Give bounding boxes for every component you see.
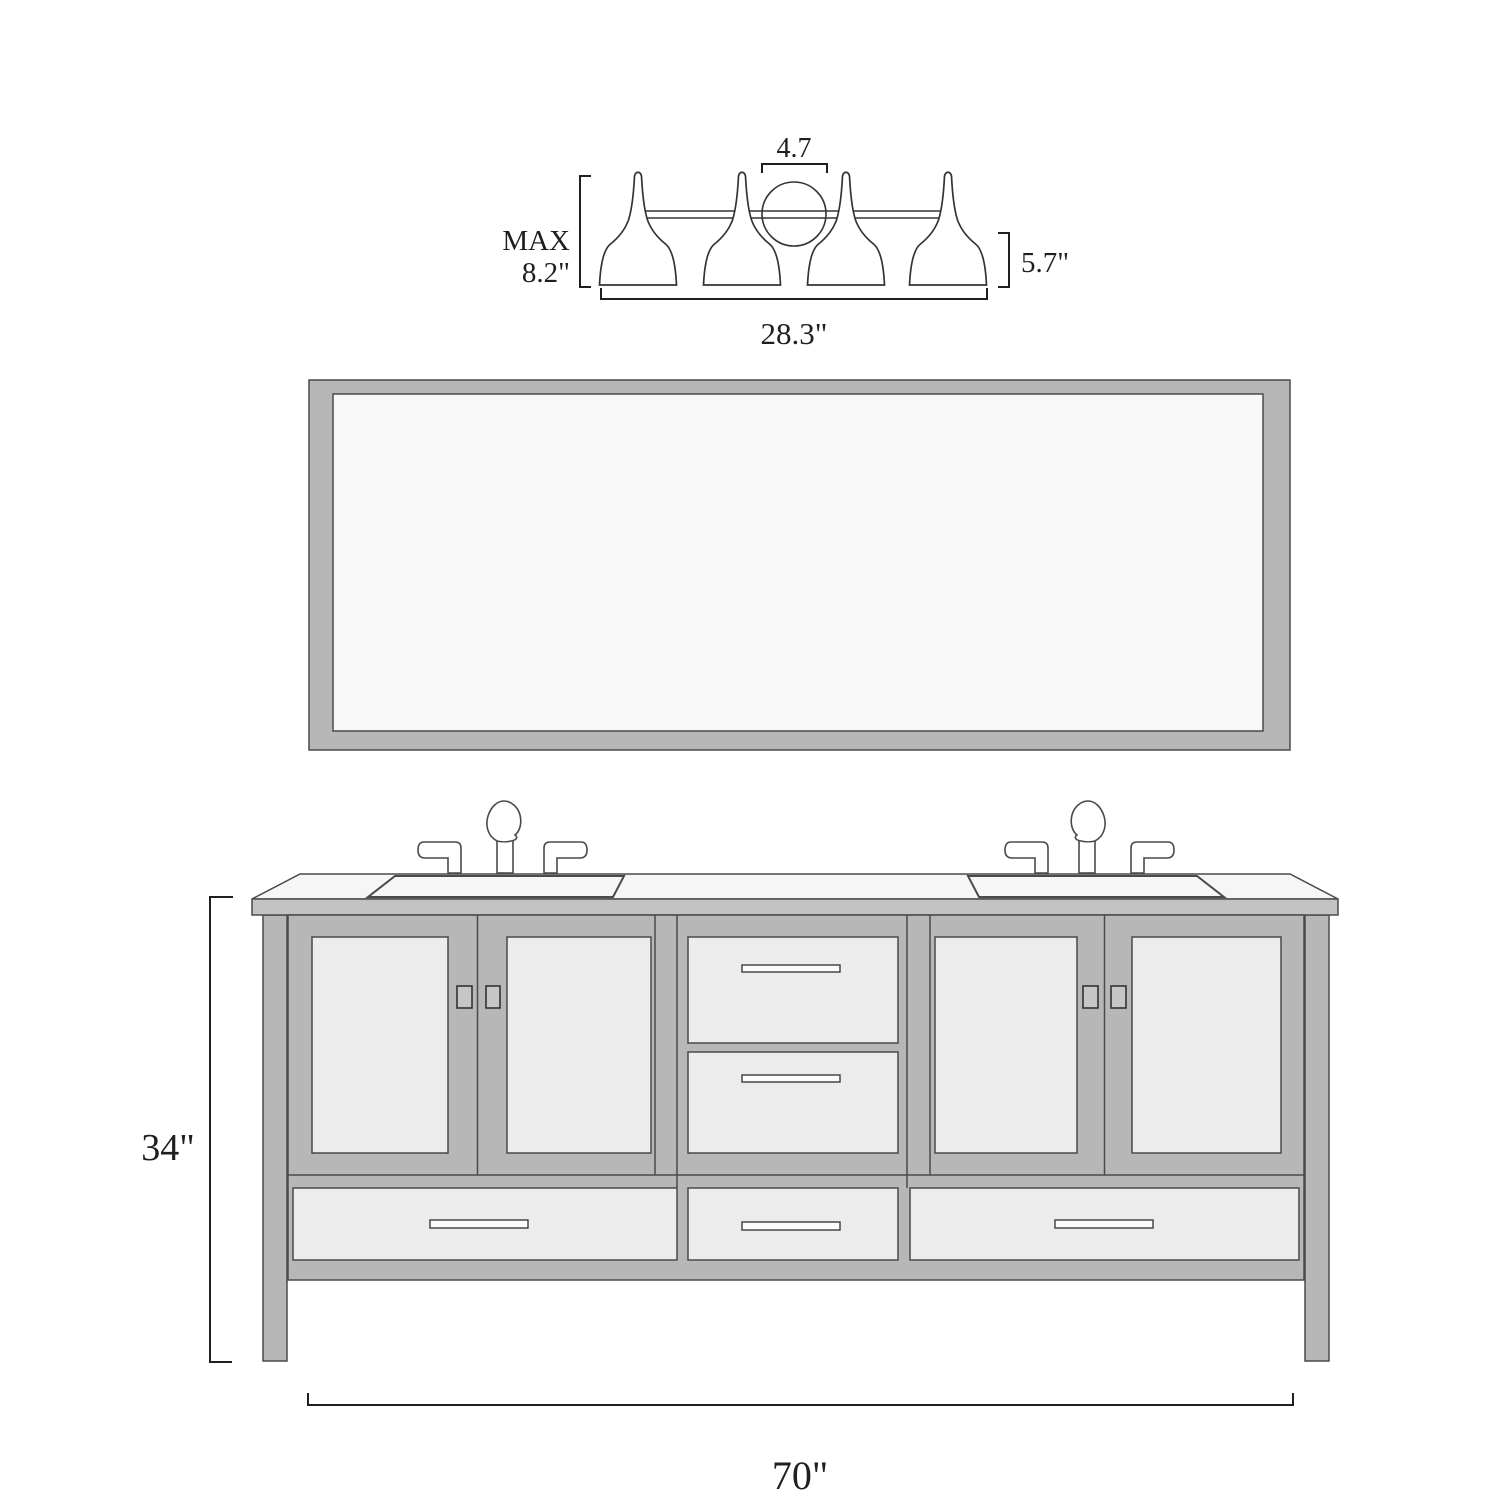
dim-bracket-shade-height	[998, 233, 1009, 287]
right-leg	[1305, 915, 1329, 1361]
vanity-light-fixture: 4.7 MAX 8.2" 5.7" 28.3"	[502, 133, 1069, 351]
dim-label-backplate-width: 4.7	[777, 133, 812, 164]
bottom-drawer-left-handle	[430, 1220, 528, 1228]
light-shade-3	[808, 172, 885, 285]
bottom-drawer-right-handle	[1055, 1220, 1153, 1228]
door-panel-1	[312, 937, 448, 1153]
vanity-cabinet	[252, 801, 1338, 1361]
dim-label-fixture-height-line2: 8.2"	[522, 257, 570, 289]
light-shade-2	[704, 172, 781, 285]
left-leg	[263, 915, 287, 1361]
light-shade-4	[910, 172, 987, 285]
dim-label-fixture-width: 28.3"	[761, 316, 828, 351]
center-drawer-top-handle	[742, 965, 840, 972]
mirror	[309, 380, 1290, 750]
vanity-dimension-diagram: 4.7 MAX 8.2" 5.7" 28.3"	[0, 0, 1500, 1500]
right-sink	[968, 876, 1224, 897]
bottom-drawer-center-handle	[742, 1222, 840, 1230]
center-drawer-bottom	[688, 1052, 898, 1153]
mirror-glass	[333, 394, 1263, 731]
door-panel-4	[1132, 937, 1281, 1153]
door-1-handle	[457, 986, 472, 1008]
door-panel-3	[935, 937, 1077, 1153]
dim-bracket-fixture-width	[601, 288, 987, 299]
countertop-edge-band	[252, 899, 1338, 915]
left-sink	[368, 876, 624, 897]
dim-line-height	[210, 897, 233, 1362]
dim-line-width	[308, 1393, 1293, 1405]
light-shade-1	[600, 172, 677, 285]
center-drawer-bottom-handle	[742, 1075, 840, 1082]
dim-label-shade-height: 5.7"	[1021, 247, 1069, 279]
door-3-handle	[1083, 986, 1098, 1008]
left-faucet	[418, 801, 587, 873]
right-faucet	[1005, 801, 1174, 873]
door-panel-2	[507, 937, 651, 1153]
dim-label-fixture-height-line1: MAX	[502, 225, 570, 257]
dim-bracket-backplate-width	[762, 164, 827, 173]
dim-bracket-fixture-height	[580, 176, 591, 287]
center-drawer-top	[688, 937, 898, 1043]
door-2-handle	[486, 986, 500, 1008]
dim-label-width: 70"	[772, 1453, 828, 1498]
diagram-canvas: 4.7 MAX 8.2" 5.7" 28.3"	[0, 0, 1500, 1500]
light-backplate	[762, 182, 826, 246]
dim-label-height: 34"	[141, 1127, 195, 1169]
door-4-handle	[1111, 986, 1126, 1008]
